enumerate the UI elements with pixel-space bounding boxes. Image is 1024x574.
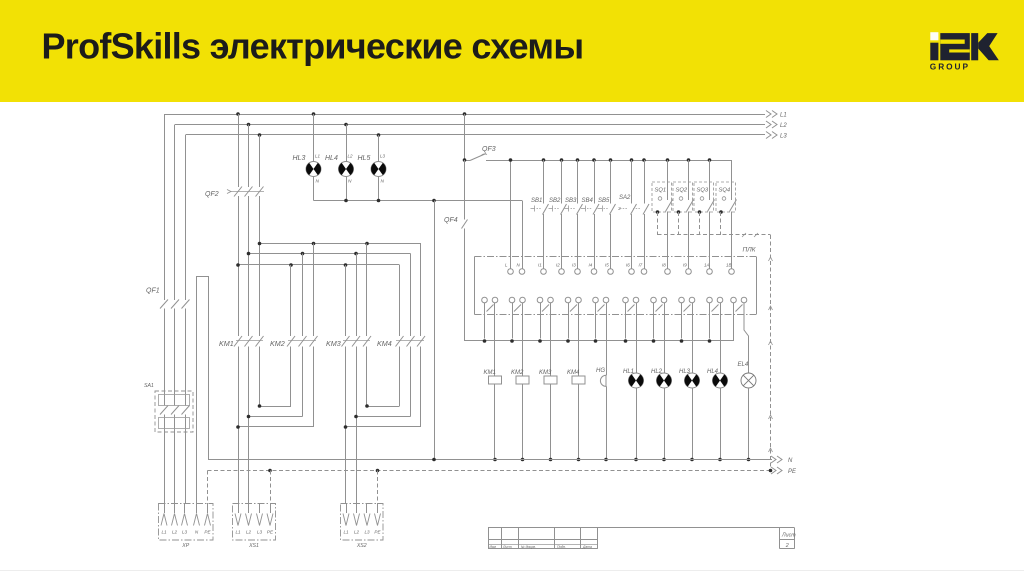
svg-text:XS1: XS1 xyxy=(248,543,259,549)
svg-text:Дата: Дата xyxy=(582,545,592,549)
svg-text:QF1: QF1 xyxy=(146,288,160,295)
svg-text:N: N xyxy=(788,458,793,464)
svg-text:L1: L1 xyxy=(343,530,349,535)
svg-text:HG: HG xyxy=(596,368,605,374)
svg-text:L2: L2 xyxy=(172,530,178,535)
svg-text:Лист: Лист xyxy=(502,545,512,549)
svg-text:SQ4: SQ4 xyxy=(719,188,731,194)
svg-text:KM3: KM3 xyxy=(539,370,552,376)
svg-text:Изм: Изм xyxy=(490,545,497,549)
svg-text:ПЛК: ПЛК xyxy=(743,247,757,254)
svg-text:I7: I7 xyxy=(639,263,643,268)
svg-text:2: 2 xyxy=(785,543,789,549)
svg-text:QF2: QF2 xyxy=(205,191,219,198)
svg-text:SB5: SB5 xyxy=(598,198,610,204)
svg-text:HL4: HL4 xyxy=(325,155,338,162)
svg-text:L2: L2 xyxy=(780,123,787,129)
svg-text:SA1: SA1 xyxy=(144,383,154,389)
svg-text:QF3: QF3 xyxy=(482,146,496,153)
svg-text:SB3: SB3 xyxy=(565,198,577,204)
svg-text:HL5: HL5 xyxy=(358,155,371,162)
svg-text:PE: PE xyxy=(267,530,274,535)
svg-text:Лист: Лист xyxy=(781,533,796,539)
svg-text:N: N xyxy=(381,179,385,185)
svg-text:L2: L2 xyxy=(246,530,252,535)
svg-text:N: N xyxy=(348,179,352,185)
svg-text:I9: I9 xyxy=(683,263,687,268)
svg-text:SQ2: SQ2 xyxy=(676,188,688,194)
svg-text:L: L xyxy=(505,263,508,268)
svg-text:I3: I3 xyxy=(572,263,576,268)
svg-text:XP: XP xyxy=(181,543,189,549)
svg-text:KM4: KM4 xyxy=(567,370,580,376)
svg-text:HL3: HL3 xyxy=(293,155,306,162)
svg-text:KM2: KM2 xyxy=(511,370,524,376)
svg-text:L3: L3 xyxy=(780,134,787,140)
svg-text:SB1: SB1 xyxy=(531,198,542,204)
svg-text:KM3: KM3 xyxy=(326,339,341,348)
svg-text:L3: L3 xyxy=(182,530,188,535)
svg-text:L2: L2 xyxy=(354,530,360,535)
svg-text:L2: L2 xyxy=(348,154,354,159)
svg-text:L1: L1 xyxy=(315,154,321,159)
svg-text:I5: I5 xyxy=(605,263,609,268)
svg-text:SQ3: SQ3 xyxy=(697,188,709,194)
svg-text:1B: 1B xyxy=(726,263,732,268)
svg-text:SA2: SA2 xyxy=(619,195,631,201)
svg-text:PE: PE xyxy=(374,530,381,535)
svg-text:EL4: EL4 xyxy=(738,362,749,368)
svg-text:KM4: KM4 xyxy=(377,339,392,348)
svg-text:XS2: XS2 xyxy=(356,543,367,549)
svg-text:SB2: SB2 xyxy=(549,198,561,204)
svg-text:QF4: QF4 xyxy=(444,217,458,224)
svg-text:L1: L1 xyxy=(780,113,787,119)
svg-text:L3: L3 xyxy=(257,530,263,535)
svg-text:L3: L3 xyxy=(364,530,370,535)
svg-text:SQ1: SQ1 xyxy=(655,188,667,194)
svg-text:L1: L1 xyxy=(161,530,167,535)
svg-text:N: N xyxy=(195,530,199,535)
svg-text:PE: PE xyxy=(204,530,211,535)
svg-text:ProfSkills электрические схемы: ProfSkills электрические схемы xyxy=(42,26,584,67)
svg-text:I4: I4 xyxy=(589,263,593,268)
svg-text:№ докум.: № докум. xyxy=(521,545,536,549)
svg-text:N: N xyxy=(316,179,320,185)
svg-text:KM2: KM2 xyxy=(270,339,285,348)
svg-text:KM1: KM1 xyxy=(484,370,496,376)
svg-text:KM1: KM1 xyxy=(219,339,234,348)
svg-text:I6: I6 xyxy=(626,263,630,268)
svg-text:I8: I8 xyxy=(662,263,666,268)
svg-text:I2: I2 xyxy=(556,263,560,268)
svg-text:N: N xyxy=(517,263,521,268)
svg-text:Подп.: Подп. xyxy=(557,545,566,549)
svg-text:L3: L3 xyxy=(380,154,386,159)
svg-text:L1: L1 xyxy=(235,530,241,535)
svg-text:I1: I1 xyxy=(538,263,542,268)
svg-text:SB4: SB4 xyxy=(582,198,594,204)
svg-text:GROUP: GROUP xyxy=(930,62,970,72)
svg-text:PE: PE xyxy=(788,469,797,475)
svg-text:1A: 1A xyxy=(704,263,710,268)
